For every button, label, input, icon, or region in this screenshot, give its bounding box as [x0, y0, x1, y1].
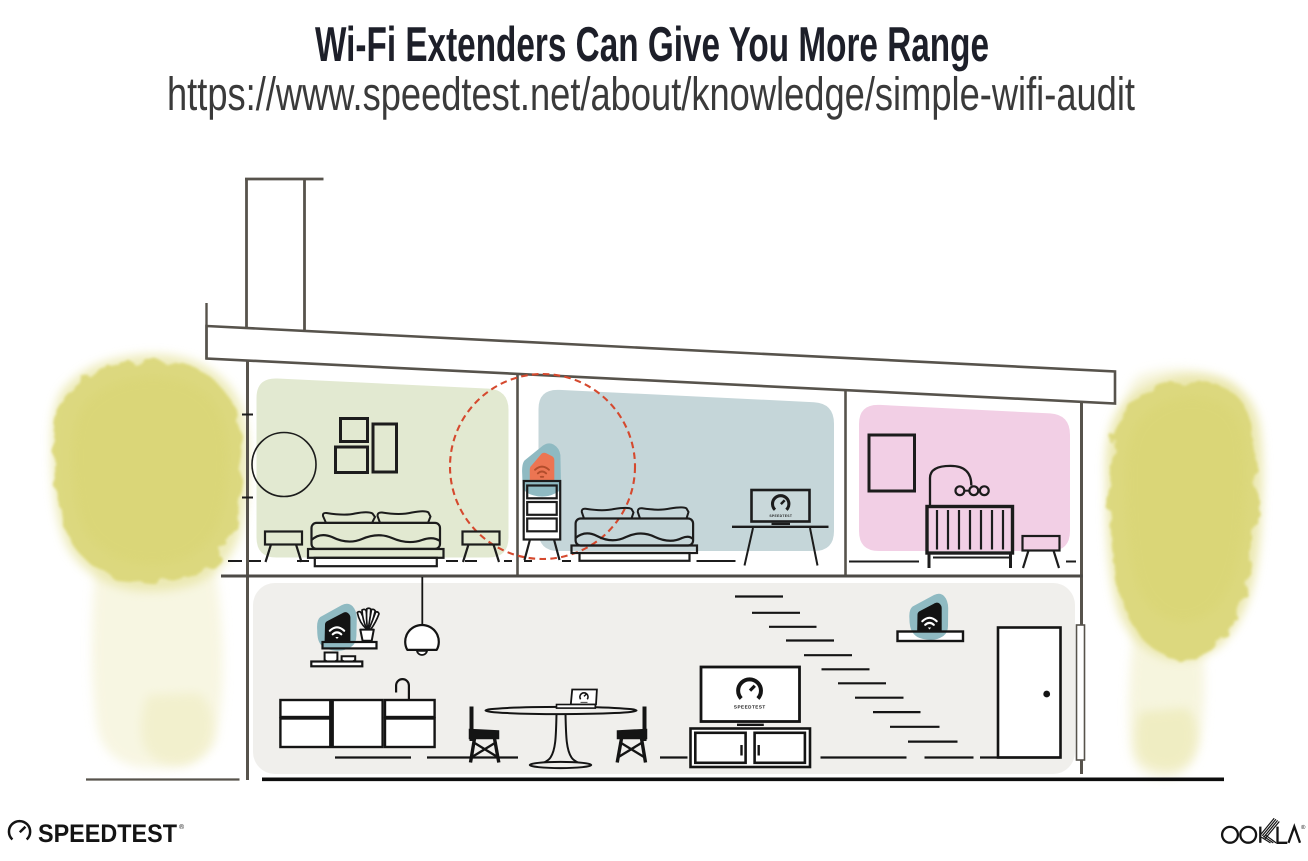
svg-text:SPEEDTEST: SPEEDTEST	[769, 514, 792, 518]
svg-text:SPEEDTEST: SPEEDTEST	[734, 705, 766, 710]
svg-text:®: ®	[1301, 824, 1306, 831]
svg-text:https://www.speedtest.net/abou: https://www.speedtest.net/about/knowledg…	[167, 67, 1135, 120]
svg-text:SPEEDTEST: SPEEDTEST	[38, 820, 177, 848]
svg-text:®: ®	[179, 824, 185, 831]
svg-text:Wi-Fi Extenders Can Give You M: Wi-Fi Extenders Can Give You More Range	[315, 18, 989, 72]
